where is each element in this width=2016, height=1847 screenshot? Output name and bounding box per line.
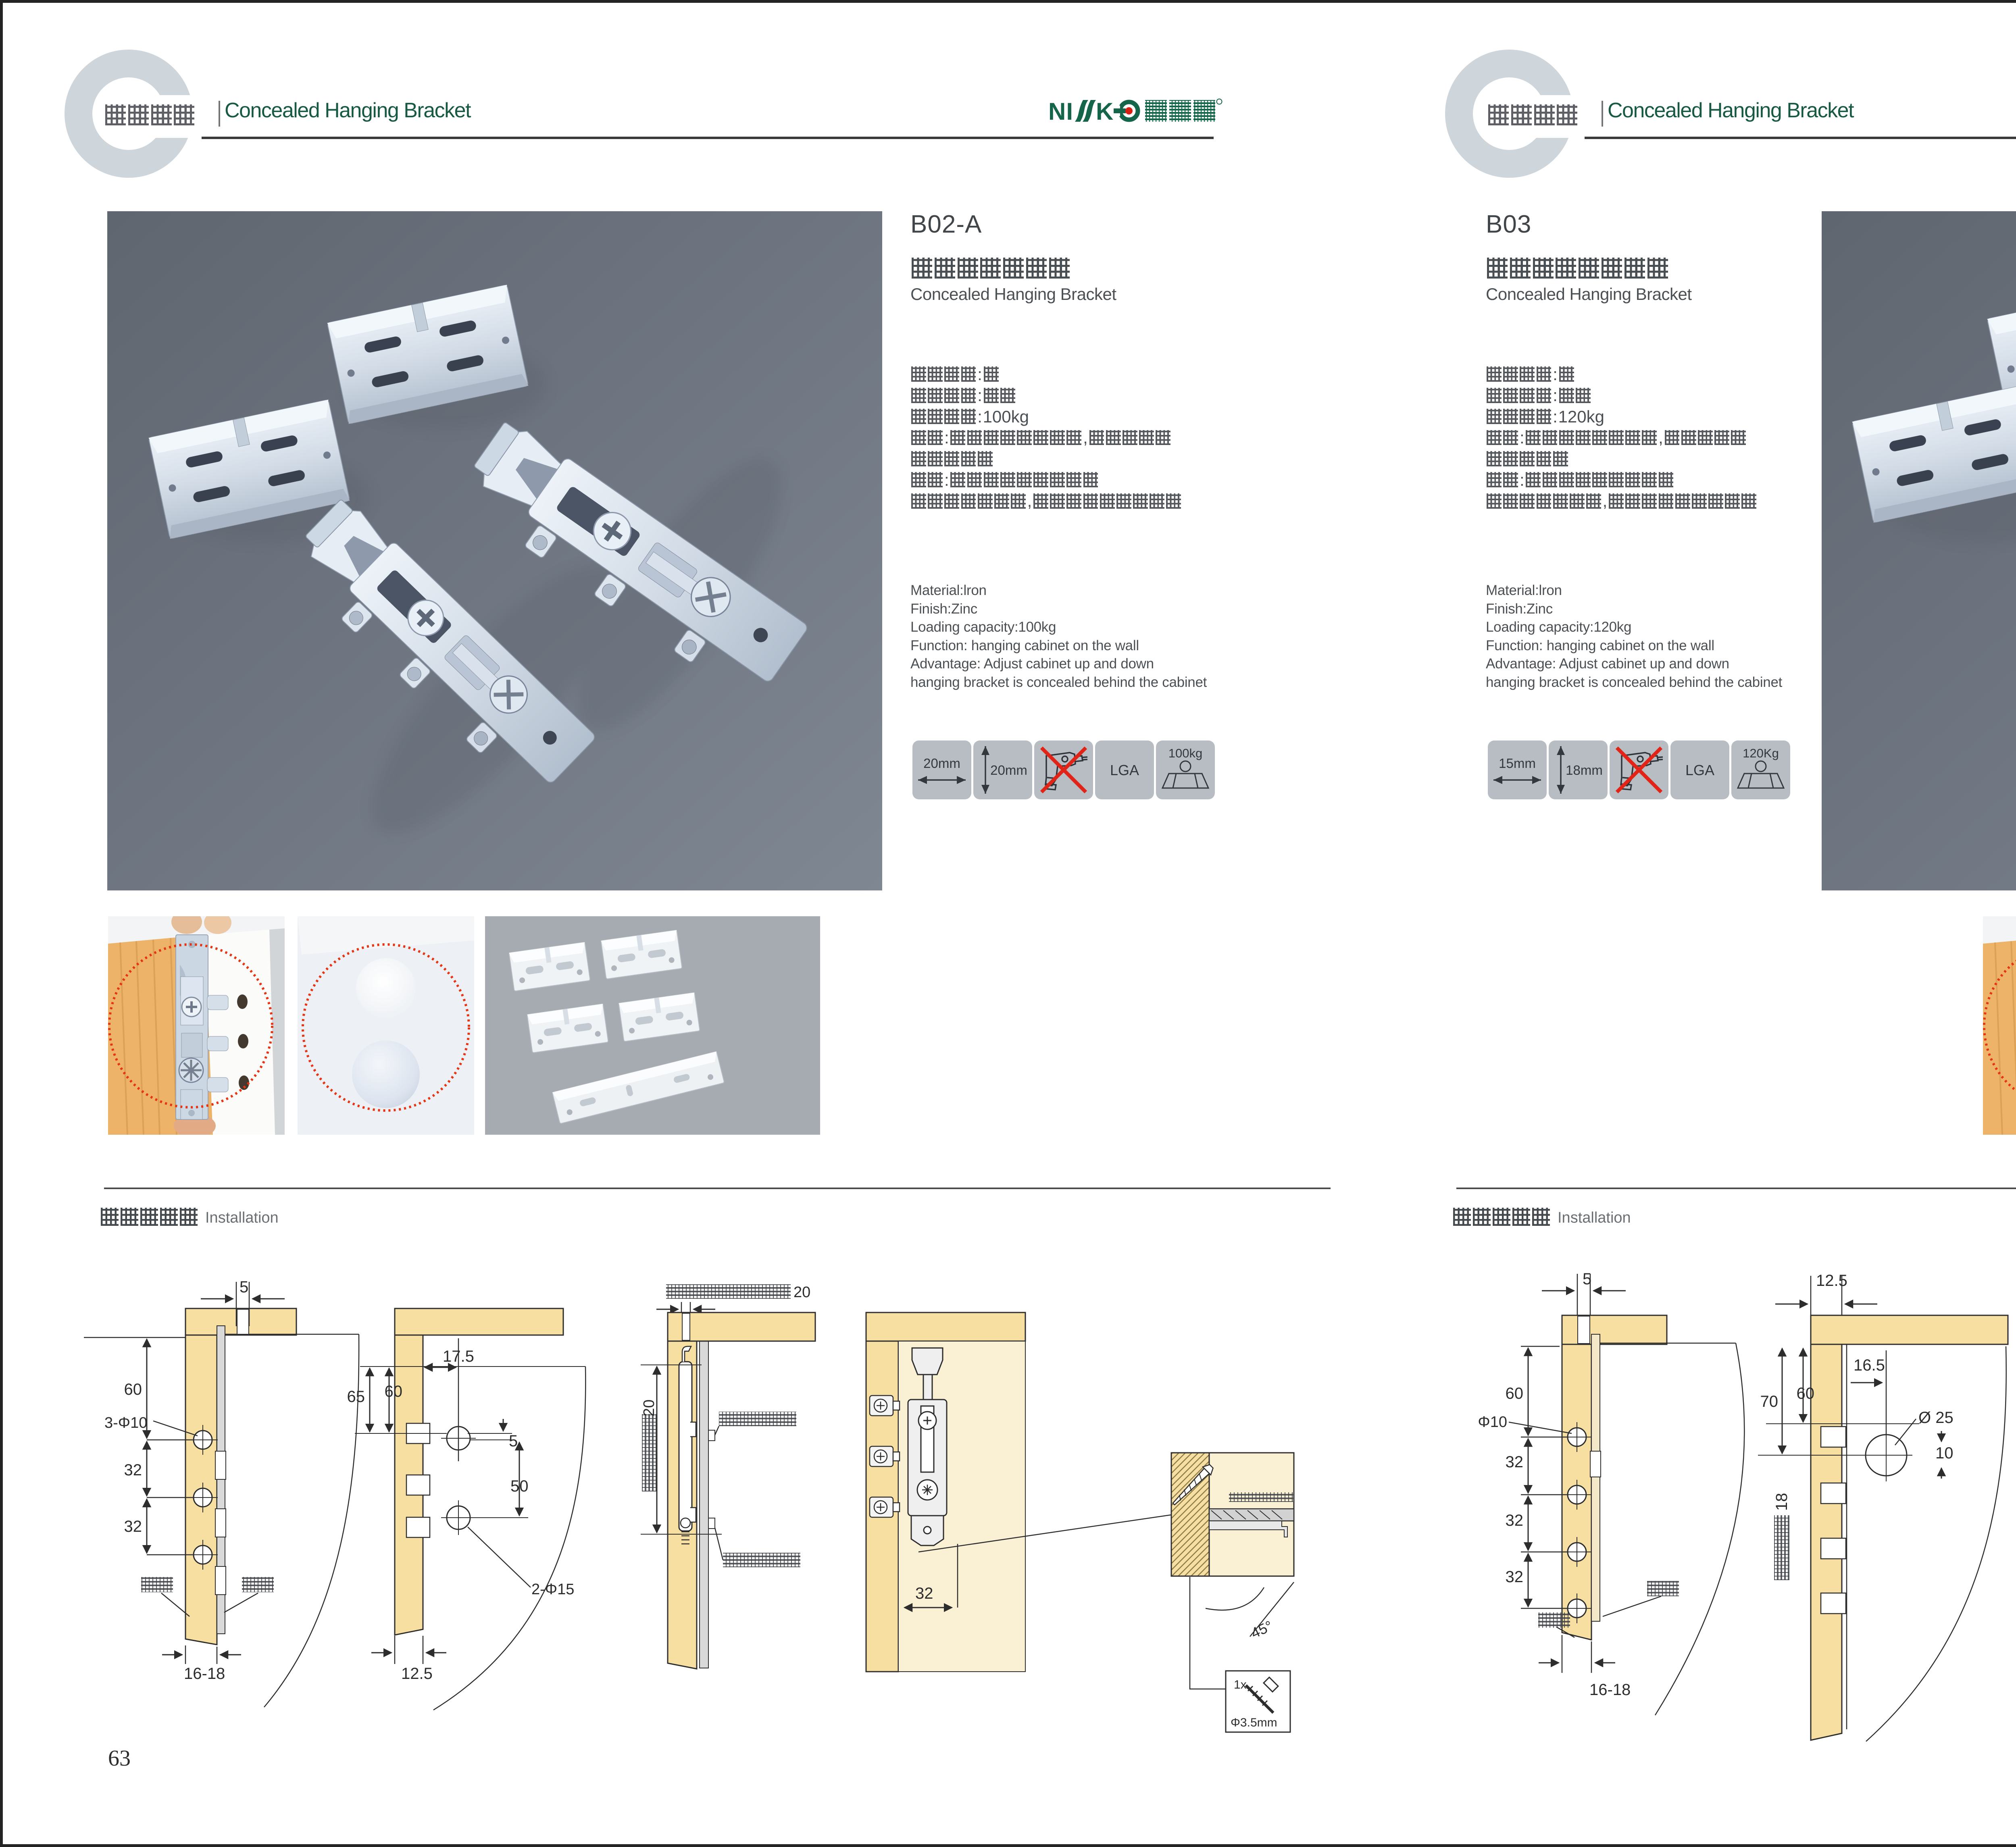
svg-text:Φ3.5mm: Φ3.5mm xyxy=(1231,1716,1277,1729)
svg-text:15mm: 15mm xyxy=(1499,756,1536,771)
svg-text:70: 70 xyxy=(1760,1393,1779,1410)
svg-text:Ø 25: Ø 25 xyxy=(1918,1409,1954,1427)
svg-text:50: 50 xyxy=(510,1477,529,1495)
svg-text:65: 65 xyxy=(347,1388,365,1406)
svg-text:32: 32 xyxy=(1506,1568,1524,1586)
svg-text:16.5: 16.5 xyxy=(1854,1356,1885,1374)
svg-text:20mm: 20mm xyxy=(990,763,1027,778)
svg-text:20: 20 xyxy=(641,1400,658,1416)
svg-text:K: K xyxy=(1096,98,1113,125)
svg-text:100kg: 100kg xyxy=(1168,746,1202,760)
svg-text:60: 60 xyxy=(1797,1385,1815,1402)
svg-text:10: 10 xyxy=(1935,1444,1954,1462)
svg-text:32: 32 xyxy=(124,1461,142,1479)
svg-text:1x: 1x xyxy=(1234,1678,1247,1691)
svg-text:LGA: LGA xyxy=(1110,762,1139,778)
svg-text:5: 5 xyxy=(240,1278,248,1296)
svg-text:18mm: 18mm xyxy=(1566,763,1603,778)
svg-text:120Kg: 120Kg xyxy=(1743,746,1779,760)
svg-text:NI: NI xyxy=(1049,98,1073,125)
svg-text:Φ10: Φ10 xyxy=(1478,1414,1507,1431)
svg-text:60: 60 xyxy=(124,1381,142,1398)
svg-text:45°: 45° xyxy=(1248,1617,1275,1641)
svg-text:3-Φ10: 3-Φ10 xyxy=(104,1414,147,1431)
svg-text:16-18: 16-18 xyxy=(1589,1681,1631,1699)
svg-text:20: 20 xyxy=(793,1284,810,1301)
svg-text:12.5: 12.5 xyxy=(401,1665,433,1683)
svg-text:5: 5 xyxy=(509,1432,518,1450)
svg-text:16-18: 16-18 xyxy=(184,1665,225,1683)
svg-text:32: 32 xyxy=(1506,1512,1524,1529)
svg-text:32: 32 xyxy=(915,1585,933,1602)
svg-text:2-Φ15: 2-Φ15 xyxy=(531,1581,574,1598)
svg-text:12.5: 12.5 xyxy=(1816,1272,1847,1290)
svg-text:LGA: LGA xyxy=(1685,762,1714,778)
svg-text:20mm: 20mm xyxy=(923,756,960,771)
svg-text:32: 32 xyxy=(1506,1453,1524,1471)
svg-text:60: 60 xyxy=(385,1383,403,1400)
svg-text:32: 32 xyxy=(124,1518,142,1535)
svg-text:60: 60 xyxy=(1506,1385,1524,1402)
svg-text:18: 18 xyxy=(1773,1493,1791,1511)
